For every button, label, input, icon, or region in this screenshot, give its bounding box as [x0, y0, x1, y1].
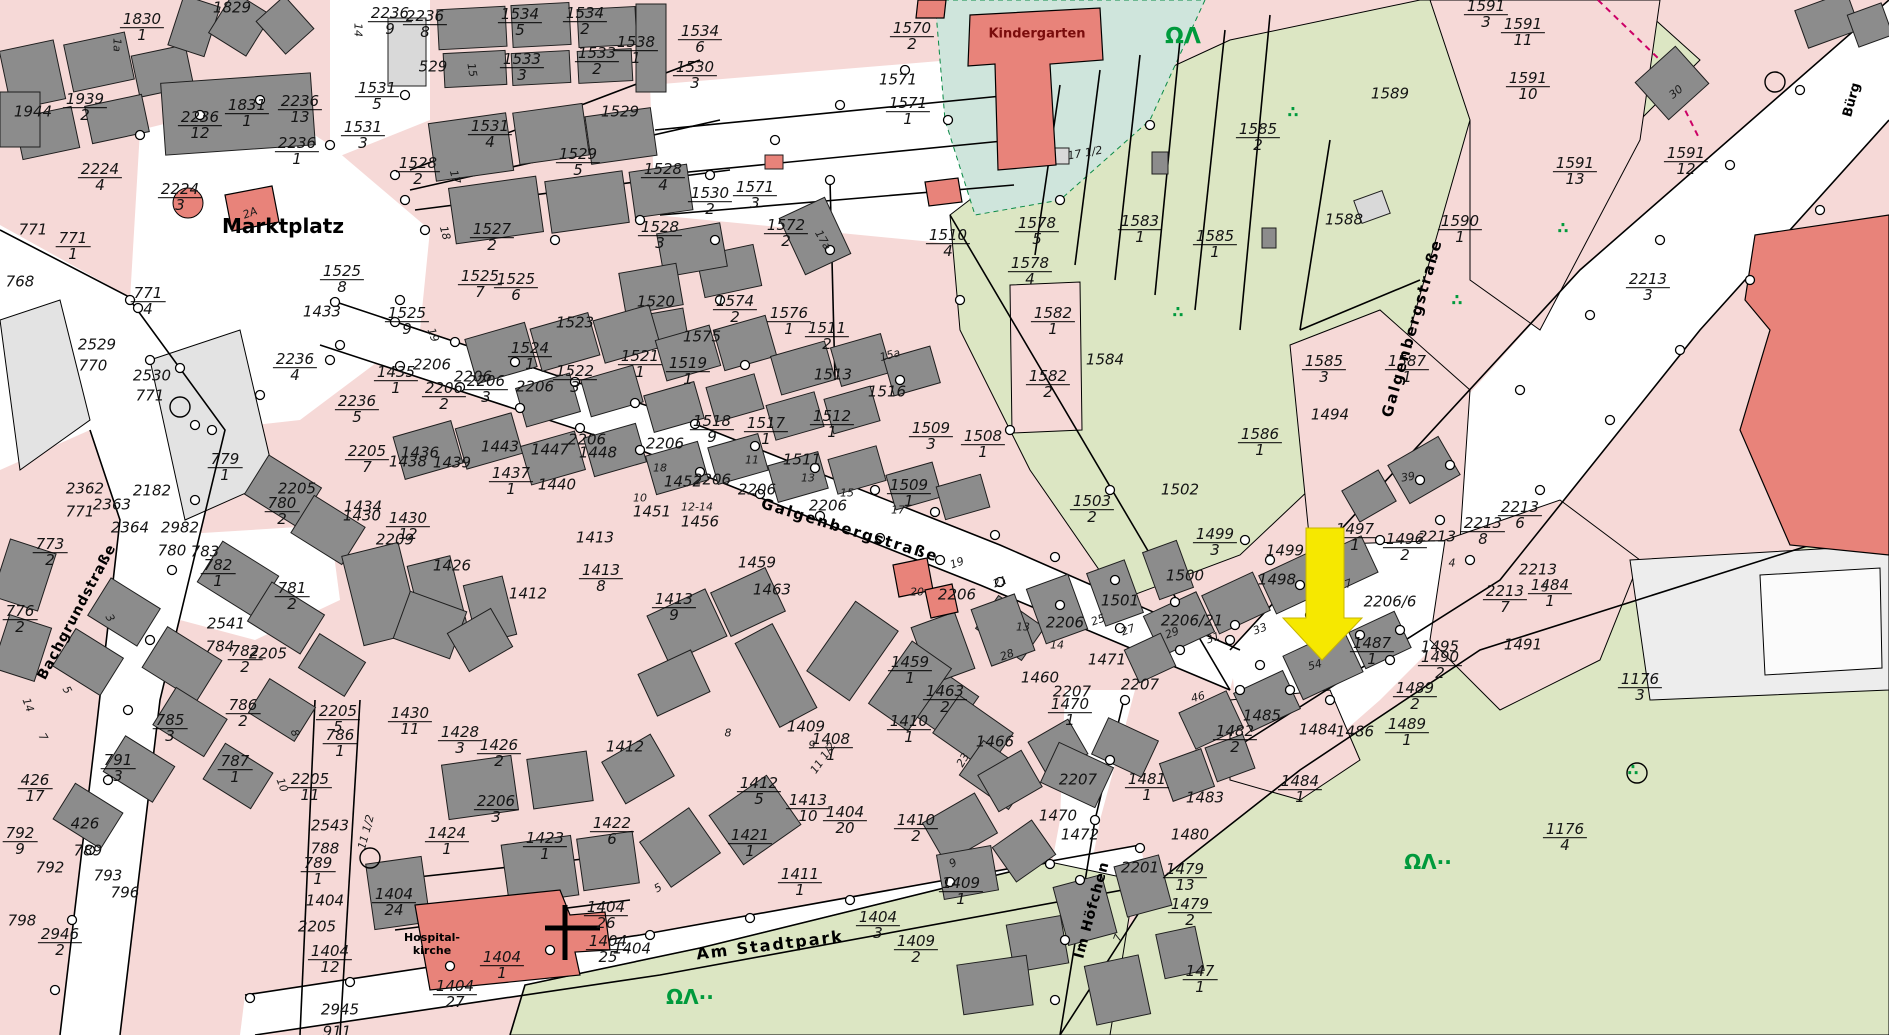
- cadastral-map: 1829183011939219442236121831122361322361…: [0, 0, 1889, 1035]
- highlight-arrow-icon: [0, 0, 1889, 1035]
